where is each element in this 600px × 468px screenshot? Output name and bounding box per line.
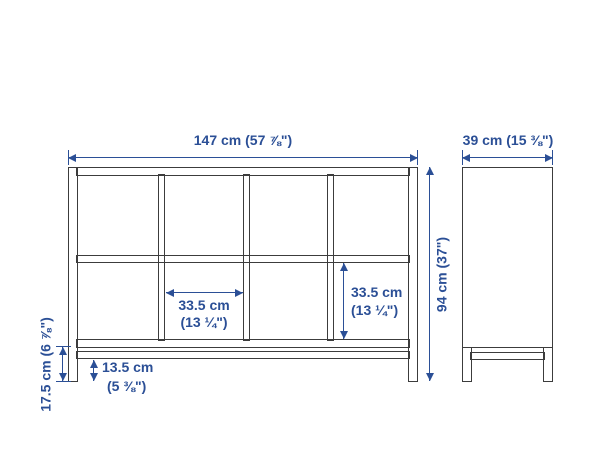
front-base-rail	[76, 351, 410, 359]
compartment-width-dimension-line	[166, 292, 243, 293]
compartment-width-label-cm: 33.5 cm	[161, 297, 247, 314]
overall-height-label: 94 cm (37")	[434, 225, 451, 325]
arrowhead-right-icon	[235, 289, 243, 297]
base-clearance-label-in: (5 ⅜")	[107, 378, 146, 395]
arrowhead-up-icon	[426, 167, 434, 175]
arrowhead-up-icon	[59, 347, 67, 355]
furniture-dimension-diagram: 147 cm (57 ⅞") 39 cm (15 ⅜") 94 cm (37")…	[0, 0, 600, 468]
width-dimension-line	[68, 157, 418, 158]
height-dimension-line	[429, 167, 430, 381]
arrowhead-right-icon	[410, 154, 418, 162]
overall-depth-label: 39 cm (15 ⅜")	[433, 132, 583, 149]
leg-extension-line	[56, 381, 71, 382]
side-body	[462, 167, 553, 348]
arrowhead-down-icon	[59, 373, 67, 381]
compartment-height-dimension-line	[343, 263, 344, 339]
side-base-rail	[470, 352, 545, 360]
compartment-width-label-in: (13 ¼")	[161, 314, 247, 331]
front-divider	[327, 174, 334, 341]
arrowhead-left-icon	[166, 289, 174, 297]
depth-dimension-line	[462, 157, 553, 158]
base-clearance-label-cm: 13.5 cm	[102, 359, 153, 376]
leg-height-label: 17.5 cm (6 ⅞")	[38, 309, 55, 421]
front-right-side-panel	[408, 167, 418, 382]
arrowhead-up-icon	[90, 360, 98, 368]
arrowhead-down-icon	[90, 373, 98, 381]
compartment-height-label-cm: 33.5 cm	[351, 284, 402, 301]
arrowhead-down-icon	[340, 331, 348, 339]
arrowhead-left-icon	[462, 154, 470, 162]
overall-width-label: 147 cm (57 ⅞")	[118, 132, 368, 149]
arrowhead-down-icon	[426, 373, 434, 381]
front-left-side-panel	[68, 167, 78, 382]
compartment-height-label-in: (13 ¼")	[351, 302, 398, 319]
arrowhead-left-icon	[68, 154, 76, 162]
arrowhead-right-icon	[545, 154, 553, 162]
arrowhead-up-icon	[340, 263, 348, 271]
